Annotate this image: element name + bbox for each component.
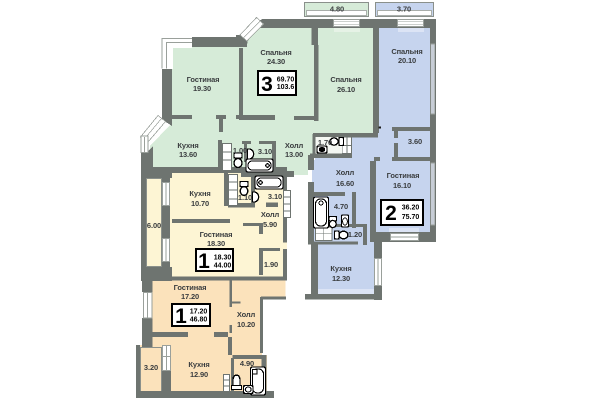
svg-text:Холл: Холл: [237, 310, 256, 319]
svg-text:1.20: 1.20: [348, 230, 362, 239]
svg-text:24.30: 24.30: [267, 57, 285, 66]
svg-text:3.70: 3.70: [397, 5, 411, 14]
svg-text:Гостиная: Гостиная: [387, 171, 420, 180]
svg-text:Спальня: Спальня: [260, 48, 291, 57]
svg-text:6.00: 6.00: [147, 221, 161, 230]
svg-text:3.60: 3.60: [408, 137, 422, 146]
svg-text:46.80: 46.80: [190, 317, 208, 324]
svg-text:Кухня: Кухня: [188, 360, 209, 369]
svg-text:1.90: 1.90: [264, 260, 278, 269]
svg-text:Спальня: Спальня: [391, 47, 422, 56]
svg-text:103.6: 103.6: [277, 84, 295, 91]
svg-text:Холл: Холл: [261, 210, 280, 219]
svg-text:16.10: 16.10: [393, 181, 411, 190]
svg-text:17.20: 17.20: [190, 309, 208, 316]
svg-text:3.10: 3.10: [268, 192, 282, 201]
svg-text:1.70: 1.70: [318, 138, 332, 147]
svg-text:4.80: 4.80: [330, 5, 344, 14]
svg-text:3: 3: [261, 73, 273, 96]
svg-text:4.70: 4.70: [334, 202, 348, 211]
svg-text:Холл: Холл: [336, 168, 355, 177]
svg-text:13.60: 13.60: [179, 150, 197, 159]
svg-text:2: 2: [385, 202, 397, 225]
svg-text:75.70: 75.70: [402, 214, 420, 221]
svg-text:Гостиная: Гостиная: [200, 230, 233, 239]
svg-text:12.30: 12.30: [332, 274, 350, 283]
svg-text:36.20: 36.20: [402, 205, 420, 212]
svg-text:4.90: 4.90: [240, 359, 254, 368]
svg-text:3.10: 3.10: [258, 147, 272, 156]
svg-text:12.90: 12.90: [190, 370, 208, 379]
svg-text:18.30: 18.30: [207, 239, 225, 248]
svg-text:26.10: 26.10: [337, 85, 355, 94]
svg-text:5.90: 5.90: [263, 220, 277, 229]
svg-text:Гостиная: Гостиная: [174, 283, 207, 292]
svg-text:13.00: 13.00: [285, 150, 303, 159]
svg-text:1: 1: [175, 305, 187, 328]
svg-text:69.70: 69.70: [277, 77, 295, 84]
svg-text:18.30: 18.30: [214, 255, 232, 262]
svg-text:17.20: 17.20: [181, 292, 199, 301]
svg-text:1.10: 1.10: [238, 193, 252, 202]
svg-text:3.20: 3.20: [144, 363, 158, 372]
svg-text:1.00: 1.00: [233, 146, 247, 155]
svg-text:Спальня: Спальня: [330, 75, 361, 84]
svg-text:10.70: 10.70: [191, 199, 209, 208]
svg-text:Гостиная: Гостиная: [187, 75, 220, 84]
svg-text:Кухня: Кухня: [189, 189, 210, 198]
svg-text:Кухня: Кухня: [330, 264, 351, 273]
svg-text:1: 1: [198, 250, 210, 273]
svg-text:19.30: 19.30: [193, 84, 211, 93]
svg-text:Кухня: Кухня: [177, 141, 198, 150]
svg-text:20.10: 20.10: [398, 56, 416, 65]
svg-text:10.20: 10.20: [237, 320, 255, 329]
svg-text:16.60: 16.60: [336, 179, 354, 188]
svg-text:Холл: Холл: [285, 141, 304, 150]
svg-text:44.00: 44.00: [214, 262, 232, 269]
